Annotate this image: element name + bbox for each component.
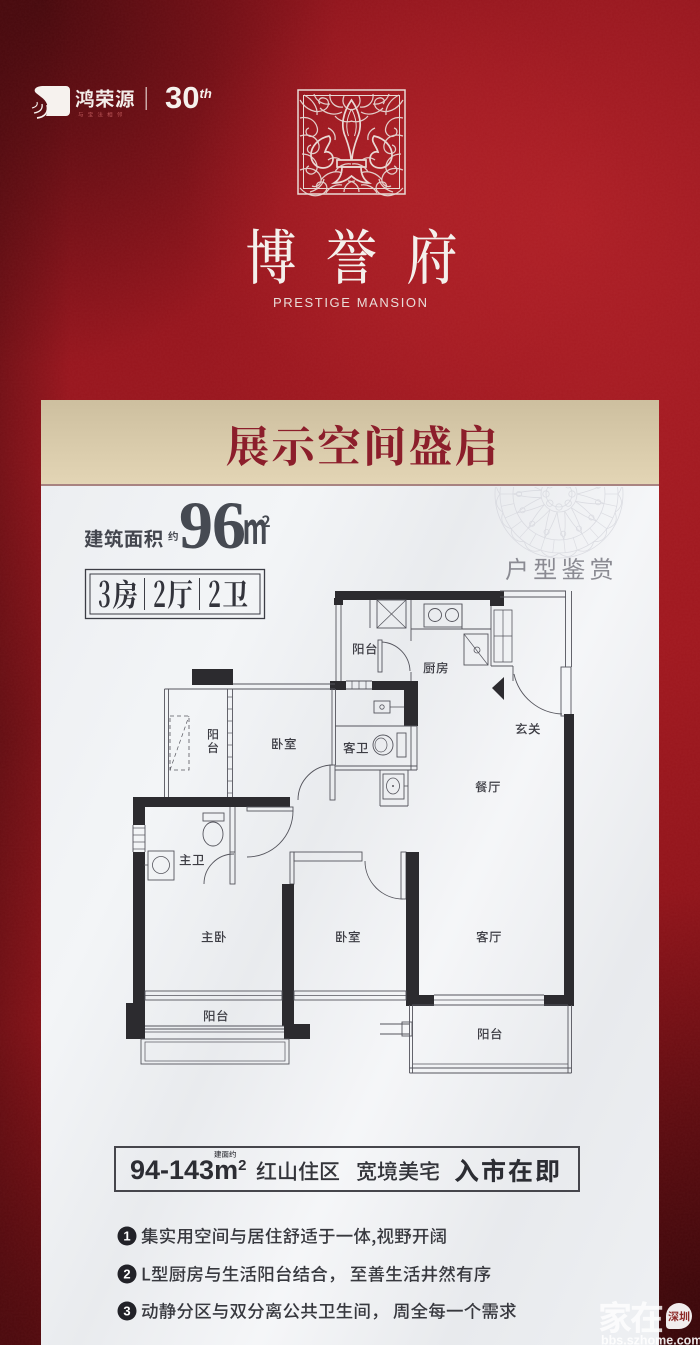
svg-text:1: 1 xyxy=(123,1229,130,1244)
svg-text:3: 3 xyxy=(123,1304,130,1319)
svg-text:bbs.szhome.com: bbs.szhome.com xyxy=(601,1334,700,1345)
svg-text:2: 2 xyxy=(123,1267,130,1282)
